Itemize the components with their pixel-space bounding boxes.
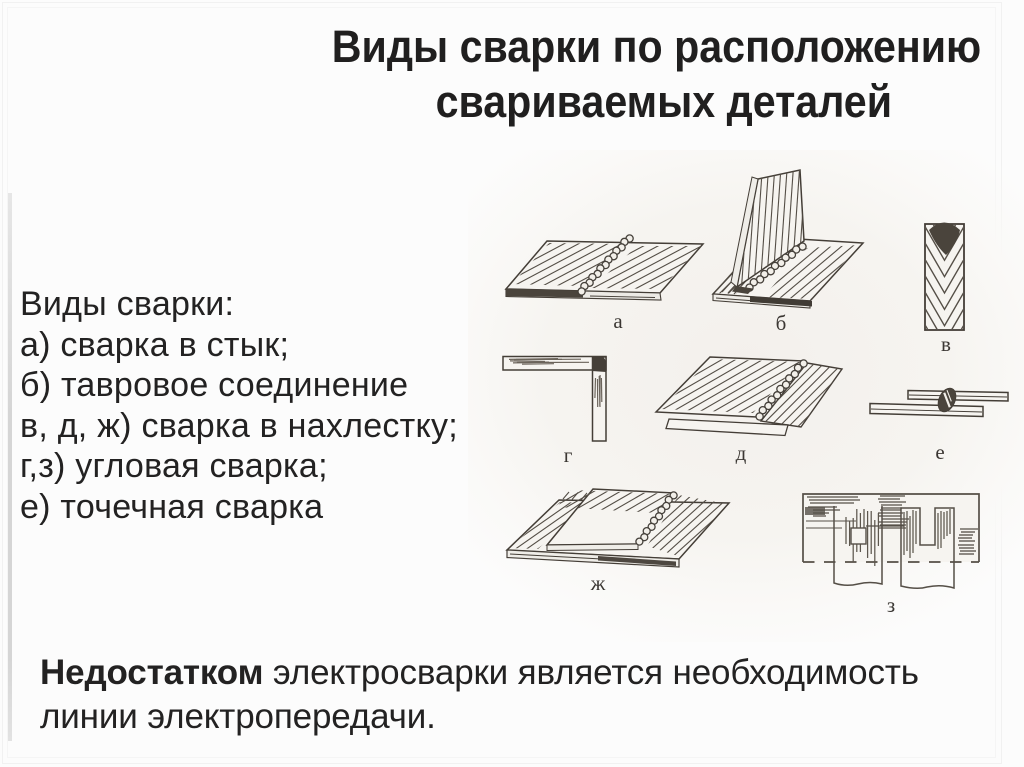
svg-text:б: б <box>776 311 787 335</box>
svg-text:е: е <box>935 440 944 464</box>
svg-text:г: г <box>564 443 573 467</box>
svg-text:ж: ж <box>590 571 606 595</box>
svg-text:д: д <box>736 441 747 465</box>
svg-text:в: в <box>941 332 951 356</box>
svg-text:з: з <box>887 593 895 617</box>
svg-text:а: а <box>613 309 623 333</box>
